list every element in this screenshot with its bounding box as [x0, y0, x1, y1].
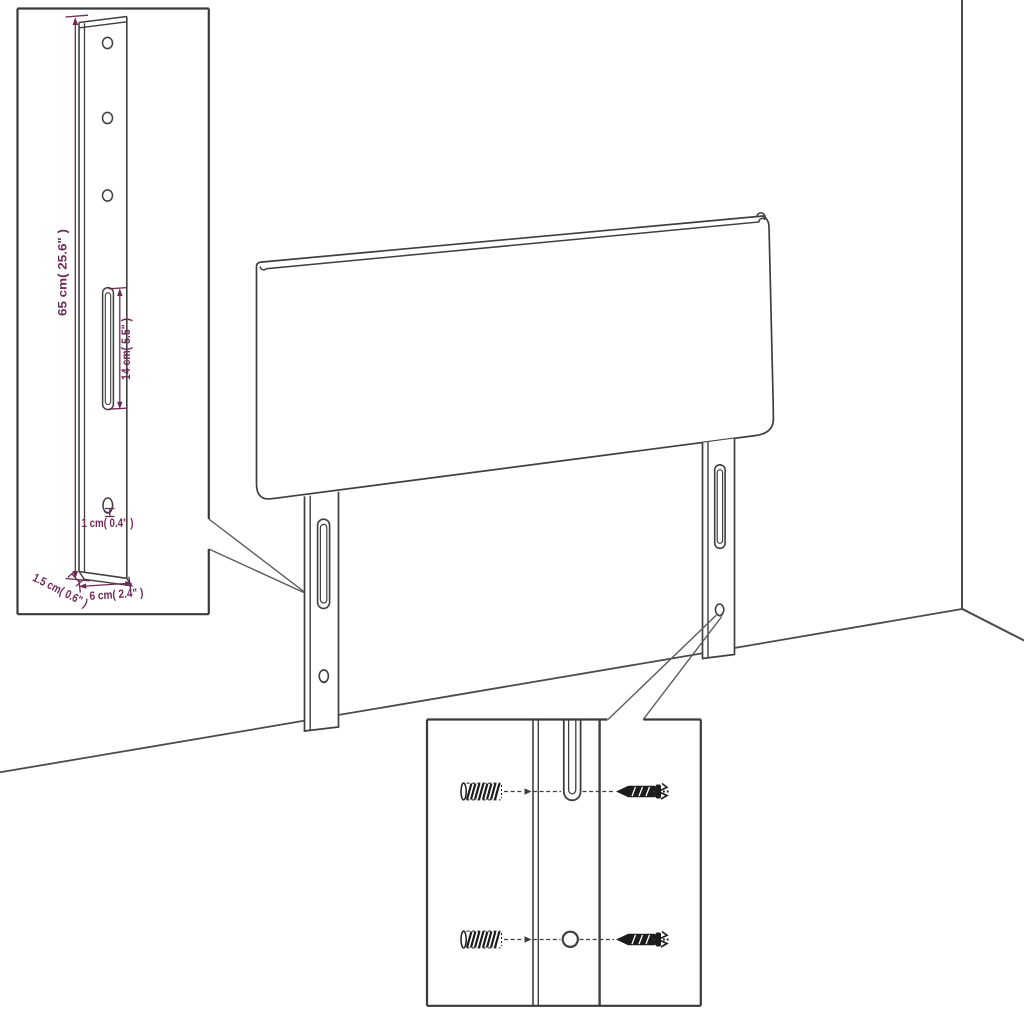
dash-arrow-top — [525, 788, 532, 794]
magnified-slot-inner — [569, 720, 576, 794]
wall-corner-line — [962, 0, 1024, 641]
diagram-page: 65 cm( 25.6" ) 14 cm( 5.5" ) 1 cm( 0.4" … — [0, 0, 1024, 1024]
dash-arrow-bottom — [525, 936, 532, 942]
height-arrow-up — [73, 17, 79, 25]
headboard-top-lip-line — [260, 218, 765, 269]
hardware-inset-panel — [427, 720, 701, 1006]
screw-icon — [616, 933, 669, 947]
width-dimension-label: 6 cm( 2.4" ) — [89, 585, 144, 603]
headboard-panel — [257, 213, 774, 499]
wall-anchor-icon — [461, 783, 502, 800]
bracket-slot — [103, 288, 114, 410]
thickness-dimension-label: 1.5 cm( 0.6" ) — [30, 570, 90, 610]
leader-dots — [654, 792, 657, 940]
magnified-hole — [563, 932, 578, 947]
dimension-inset-panel: 65 cm( 25.6" ) 14 cm( 5.5" ) 1 cm( 0.4" … — [18, 9, 209, 615]
bracket-slot-inner — [105, 293, 110, 405]
slot-dimension-label: 14 cm( 5.5" ) — [119, 318, 133, 380]
slot-arrow-up — [117, 288, 122, 296]
right-mount-leg — [703, 439, 735, 659]
headboard-outline — [257, 216, 774, 499]
screw-icon — [616, 785, 669, 799]
height-dimension-label: 65 cm( 25.6" ) — [56, 229, 70, 316]
hole-dimension-label: 1 cm( 0.4" ) — [82, 516, 134, 530]
floor-line — [0, 609, 962, 772]
callout-lines-dimension-inset — [209, 519, 304, 593]
fixing-hardware — [461, 783, 669, 948]
assembly-diagram: 65 cm( 25.6" ) 14 cm( 5.5" ) 1 cm( 0.4" … — [0, 0, 1024, 1024]
magnified-leg-section — [533, 720, 600, 1006]
magnified-slot — [564, 720, 581, 801]
wall-anchor-icon — [461, 931, 502, 948]
room-corner-lines — [0, 0, 1024, 772]
left-mount-leg — [305, 492, 339, 731]
mounting-bracket-detail — [79, 17, 132, 586]
